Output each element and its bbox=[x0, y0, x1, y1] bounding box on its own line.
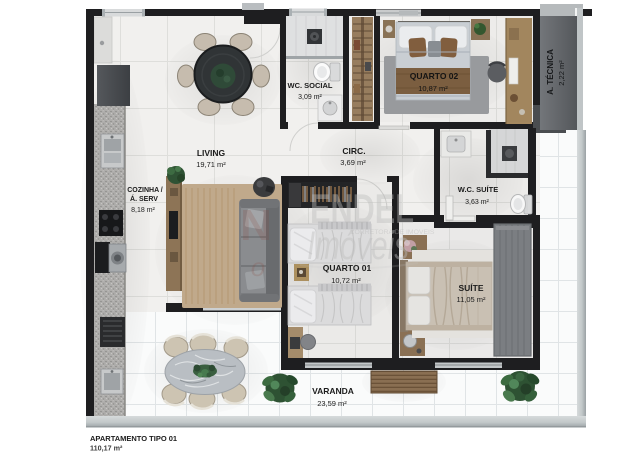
svg-text:Imóveis: Imóveis bbox=[307, 224, 409, 268]
svg-text:APARTAMENTO TIPO 01: APARTAMENTO TIPO 01 bbox=[90, 434, 177, 443]
svg-text:3,63 m²: 3,63 m² bbox=[465, 199, 489, 206]
svg-text:QUARTO 01: QUARTO 01 bbox=[323, 263, 372, 273]
svg-text:SUÍTE: SUÍTE bbox=[458, 283, 483, 293]
svg-text:3,09 m²: 3,09 m² bbox=[298, 94, 322, 101]
svg-text:VARANDA: VARANDA bbox=[312, 386, 354, 396]
svg-text:23,59 m²: 23,59 m² bbox=[317, 399, 347, 408]
svg-text:W.C. SUÍTE: W.C. SUÍTE bbox=[458, 185, 498, 194]
svg-text:10,87 m²: 10,87 m² bbox=[418, 84, 448, 93]
svg-text:3,69 m²: 3,69 m² bbox=[340, 158, 366, 167]
svg-text:Á. SERV: Á. SERV bbox=[130, 194, 158, 203]
svg-text:o: o bbox=[251, 252, 265, 282]
svg-text:N: N bbox=[240, 201, 272, 250]
svg-text:QUARTO 02: QUARTO 02 bbox=[410, 71, 459, 81]
svg-text:LIVING: LIVING bbox=[197, 148, 226, 158]
svg-text:CIRC.: CIRC. bbox=[342, 146, 365, 156]
svg-text:10,72 m²: 10,72 m² bbox=[331, 276, 361, 285]
svg-text:11,05 m²: 11,05 m² bbox=[456, 295, 486, 304]
svg-text:110,17 m²: 110,17 m² bbox=[90, 444, 123, 453]
svg-text:WC. SOCIAL: WC. SOCIAL bbox=[288, 81, 333, 90]
svg-text:COZINHA /: COZINHA / bbox=[127, 187, 163, 194]
svg-text:8,18 m²: 8,18 m² bbox=[131, 207, 155, 214]
svg-text:2,22 m²: 2,22 m² bbox=[557, 60, 566, 86]
svg-text:19,71 m²: 19,71 m² bbox=[196, 160, 226, 169]
svg-text:A. TÉCNICA: A. TÉCNICA bbox=[546, 49, 555, 95]
